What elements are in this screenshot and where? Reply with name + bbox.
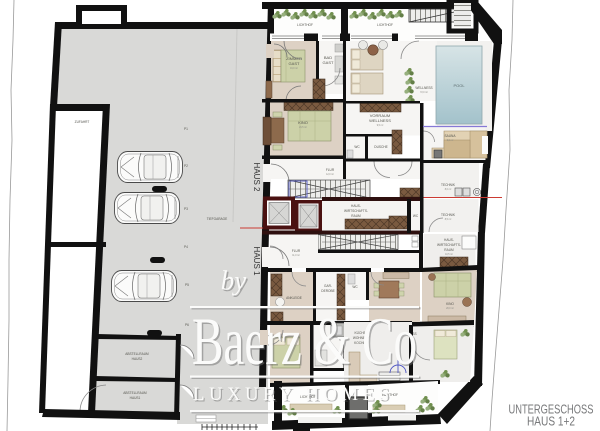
- svg-text:RAUM: RAUM: [444, 248, 454, 252]
- svg-text:HAUS 2: HAUS 2: [252, 163, 261, 192]
- svg-text:GAST: GAST: [289, 61, 300, 66]
- svg-text:HAUS-: HAUS-: [351, 204, 361, 208]
- svg-text:WC: WC: [413, 214, 419, 218]
- svg-text:P1: P1: [184, 127, 188, 131]
- svg-text:DEROBE: DEROBE: [321, 289, 334, 293]
- svg-text:ANKLEIDE: ANKLEIDE: [286, 296, 302, 300]
- svg-text:HAUS1: HAUS1: [130, 396, 141, 400]
- svg-text:12,0 m²: 12,0 m²: [326, 173, 334, 176]
- svg-text:21,5 m²: 21,5 m²: [299, 126, 307, 129]
- svg-text:20,0 m²: 20,0 m²: [446, 307, 454, 310]
- svg-text:9,0 m²: 9,0 m²: [447, 139, 454, 142]
- svg-text:10,5 m²: 10,5 m²: [445, 253, 453, 256]
- svg-text:GAST: GAST: [323, 60, 334, 65]
- svg-text:WC: WC: [352, 285, 358, 289]
- svg-text:FLUR: FLUR: [292, 249, 301, 253]
- svg-text:P6: P6: [185, 323, 189, 327]
- svg-text:DUSCHE: DUSCHE: [374, 145, 387, 149]
- svg-text:ABSTELLRAUM: ABSTELLRAUM: [125, 352, 149, 356]
- svg-text:16,0 m²: 16,0 m²: [290, 67, 298, 70]
- svg-text:FLUR: FLUR: [326, 168, 335, 172]
- svg-text:LICHTHOF: LICHTHOF: [377, 23, 393, 27]
- svg-text:WELLNESS: WELLNESS: [415, 86, 432, 90]
- svg-text:HAUS-: HAUS-: [444, 238, 454, 242]
- svg-text:WELLNESS: WELLNESS: [369, 118, 391, 123]
- svg-text:TIEFGARAGE: TIEFGARAGE: [207, 217, 228, 221]
- svg-text:P2: P2: [184, 164, 188, 168]
- svg-text:11,0 m²: 11,0 m²: [292, 254, 300, 257]
- svg-text:GAR-: GAR-: [324, 284, 332, 288]
- svg-text:by: by: [221, 266, 247, 296]
- svg-text:9,5 m²: 9,5 m²: [377, 124, 384, 127]
- svg-text:8,0 m²: 8,0 m²: [445, 188, 452, 191]
- svg-text:SAUNA: SAUNA: [445, 134, 457, 138]
- svg-text:LICHTHOF: LICHTHOF: [297, 23, 313, 27]
- svg-text:P3: P3: [184, 207, 188, 211]
- svg-text:HAUS 1: HAUS 1: [252, 247, 261, 276]
- svg-text:KINO: KINO: [446, 302, 454, 306]
- svg-text:WIRTSCHAFTS-: WIRTSCHAFTS-: [344, 209, 368, 213]
- svg-text:HAUS 1+2: HAUS 1+2: [527, 414, 575, 429]
- svg-text:TECHNIK: TECHNIK: [441, 213, 456, 217]
- svg-text:RAUM: RAUM: [351, 214, 361, 218]
- svg-text:P5: P5: [185, 283, 189, 287]
- svg-text:WIRTSCHAFTS-: WIRTSCHAFTS-: [437, 243, 461, 247]
- svg-text:ZUFAHRT: ZUFAHRT: [75, 120, 90, 124]
- svg-text:72,0 m²: 72,0 m²: [420, 91, 428, 94]
- svg-text:HAUS2: HAUS2: [132, 357, 143, 361]
- svg-text:ABSTELLRAUM: ABSTELLRAUM: [123, 391, 147, 395]
- svg-text:8,5 m²: 8,5 m²: [445, 218, 452, 221]
- svg-text:KINO: KINO: [298, 120, 308, 125]
- svg-text:LUXURY HOMES: LUXURY HOMES: [193, 385, 395, 405]
- svg-text:P4: P4: [184, 245, 188, 249]
- svg-text:TECHNIK: TECHNIK: [441, 183, 456, 187]
- svg-text:POOL: POOL: [453, 83, 465, 88]
- svg-text:Baerz & Co: Baerz & Co: [192, 303, 417, 379]
- svg-text:WC: WC: [354, 145, 360, 149]
